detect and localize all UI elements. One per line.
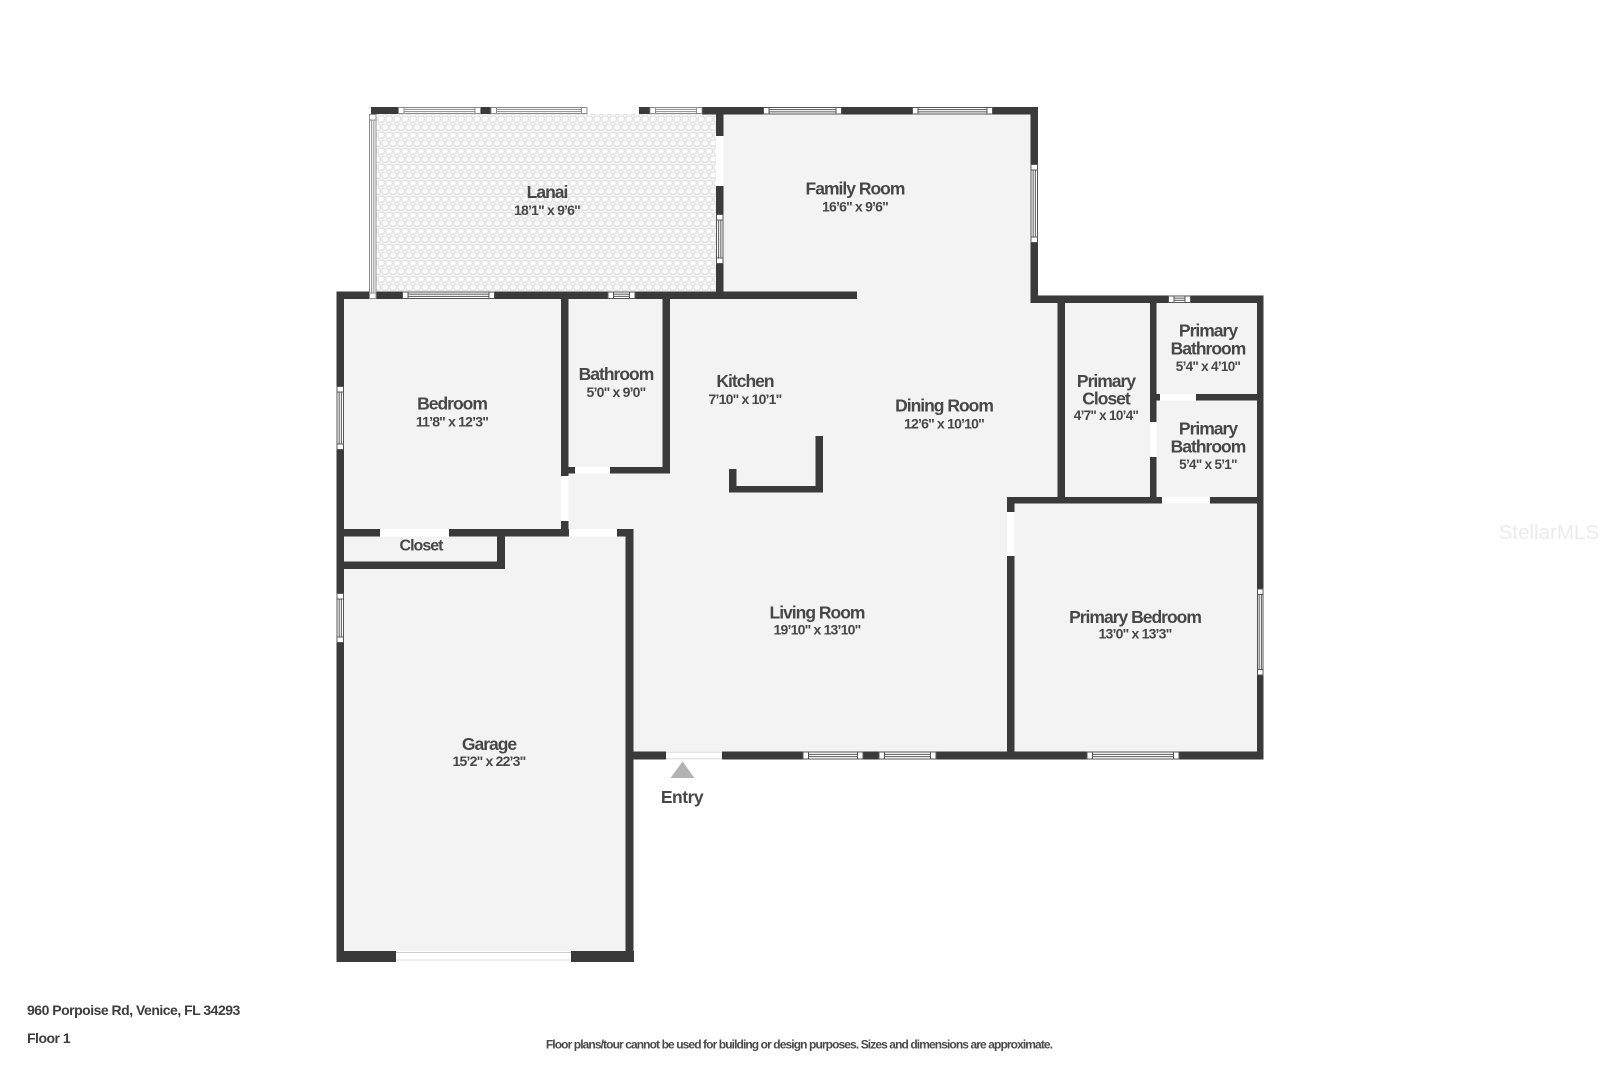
svg-text:960 Porpoise Rd, Venice, FL 34: 960 Porpoise Rd, Venice, FL 34293	[27, 1002, 241, 1018]
svg-text:Kitchen: Kitchen	[716, 371, 773, 391]
svg-text:Bathroom: Bathroom	[1171, 339, 1246, 359]
svg-text:18’1" x 9’6": 18’1" x 9’6"	[514, 202, 580, 218]
svg-text:11’8" x 12’3": 11’8" x 12’3"	[416, 414, 488, 430]
svg-text:7’10" x 10’1": 7’10" x 10’1"	[709, 391, 782, 407]
svg-text:Closet: Closet	[1082, 389, 1131, 409]
svg-text:Primary Bedroom: Primary Bedroom	[1069, 607, 1201, 627]
svg-text:Primary: Primary	[1179, 419, 1238, 439]
svg-text:Closet: Closet	[400, 538, 445, 555]
svg-text:Bathroom: Bathroom	[579, 364, 654, 384]
svg-text:Garage: Garage	[462, 734, 518, 754]
svg-text:Living Room: Living Room	[770, 603, 865, 623]
svg-text:Floor plans/tour cannot be use: Floor plans/tour cannot be used for buil…	[546, 1038, 1053, 1052]
svg-text:StellarMLS: StellarMLS	[1499, 521, 1599, 544]
svg-text:Primary: Primary	[1179, 321, 1238, 341]
svg-text:5’4" x 4’10": 5’4" x 4’10"	[1176, 359, 1241, 374]
svg-text:19’10" x 13’10": 19’10" x 13’10"	[774, 622, 861, 638]
svg-text:Family Room: Family Room	[806, 179, 905, 199]
svg-text:5’0" x 9’0": 5’0" x 9’0"	[587, 384, 646, 400]
svg-text:13’0" x 13’3": 13’0" x 13’3"	[1099, 626, 1172, 642]
svg-text:5’4" x 5’1": 5’4" x 5’1"	[1179, 457, 1237, 472]
svg-text:Lanai: Lanai	[527, 182, 568, 202]
svg-text:4’7" x 10’4": 4’7" x 10’4"	[1074, 408, 1139, 423]
svg-text:16’6" x 9’6": 16’6" x 9’6"	[822, 199, 888, 215]
svg-text:Floor 1: Floor 1	[27, 1030, 71, 1046]
svg-text:Bedroom: Bedroom	[417, 394, 487, 414]
svg-text:15’2" x 22’3": 15’2" x 22’3"	[453, 753, 526, 769]
svg-text:Dining Room: Dining Room	[895, 396, 993, 416]
svg-text:Entry: Entry	[661, 787, 704, 807]
svg-text:Bathroom: Bathroom	[1171, 437, 1246, 457]
svg-text:12’6" x 10’10": 12’6" x 10’10"	[904, 416, 984, 432]
